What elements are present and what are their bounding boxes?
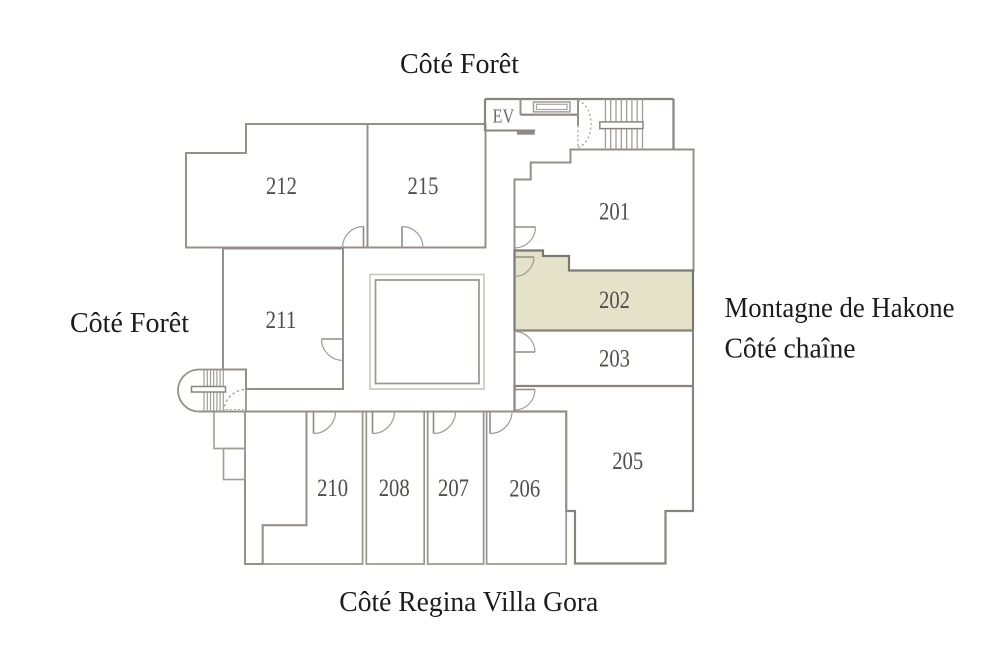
- svg-text:207: 207: [438, 475, 469, 502]
- svg-text:215: 215: [408, 173, 439, 200]
- svg-text:Montagne de Hakone: Montagne de Hakone: [725, 292, 955, 324]
- svg-text:211: 211: [266, 307, 297, 334]
- svg-text:Côté Forêt: Côté Forêt: [70, 307, 189, 339]
- svg-text:212: 212: [266, 173, 297, 200]
- svg-text:210: 210: [317, 475, 348, 502]
- svg-text:206: 206: [509, 476, 540, 503]
- svg-text:203: 203: [599, 346, 630, 373]
- svg-text:Côté chaîne: Côté chaîne: [725, 333, 856, 365]
- svg-text:EV: EV: [493, 106, 515, 128]
- svg-text:Côté Forêt: Côté Forêt: [400, 48, 519, 80]
- svg-text:201: 201: [599, 199, 630, 226]
- svg-text:Côté Regina Villa Gora: Côté Regina Villa Gora: [339, 586, 598, 618]
- svg-text:205: 205: [612, 448, 643, 475]
- svg-text:202: 202: [599, 287, 630, 314]
- svg-text:208: 208: [379, 475, 410, 502]
